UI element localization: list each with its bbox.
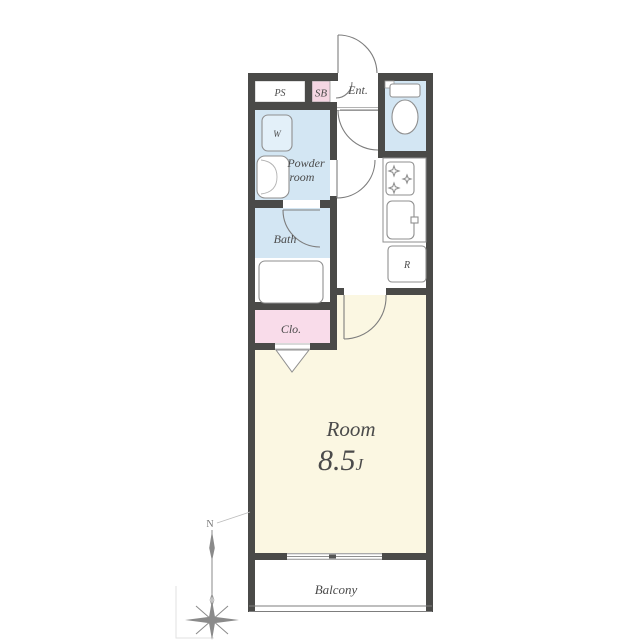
compass-leader-line bbox=[217, 512, 250, 523]
compass-rose-icon bbox=[176, 512, 250, 640]
wall-right bbox=[426, 81, 433, 612]
label-compass-north: N bbox=[206, 519, 213, 530]
label-ps: PS bbox=[273, 88, 285, 99]
floor-plan-page: PS SB Ent. W Powder room Bath Clo. R Roo… bbox=[0, 0, 640, 640]
wall-center-lower bbox=[330, 196, 337, 343]
sink-icon bbox=[387, 201, 414, 239]
toilet-tank bbox=[390, 84, 420, 97]
wall-ps-sb bbox=[305, 81, 312, 102]
wall-powder-bath-left bbox=[248, 200, 283, 208]
wall-powder-bath-right bbox=[320, 200, 337, 208]
washbasin-icon bbox=[257, 156, 289, 198]
label-fridge: R bbox=[403, 260, 410, 271]
compass-arrowhead bbox=[209, 531, 215, 561]
wall-room-bottom-right bbox=[382, 553, 433, 560]
wall-top-right bbox=[378, 73, 433, 81]
wall-top-left bbox=[248, 73, 338, 81]
wall-room-bottom-left bbox=[248, 553, 287, 560]
label-bath: Bath bbox=[274, 232, 297, 246]
bathtub-icon bbox=[259, 261, 323, 303]
label-room-name: Room bbox=[326, 417, 376, 441]
wall-toilet-left bbox=[378, 81, 385, 158]
label-entrance: Ent. bbox=[347, 83, 368, 97]
floor-plan-svg: PS SB Ent. W Powder room Bath Clo. R Roo… bbox=[0, 0, 640, 640]
window-lock-tick bbox=[329, 555, 336, 559]
label-closet: Clo. bbox=[281, 322, 301, 336]
wall-toilet-bottom bbox=[378, 151, 433, 158]
compass-frame-line bbox=[176, 586, 214, 638]
wall-room-top-stub bbox=[337, 288, 344, 295]
entrance-door-arc-icon bbox=[338, 35, 377, 73]
wall-closet-bottom-right bbox=[310, 343, 337, 350]
wall-center-upper bbox=[330, 102, 337, 160]
wall-closet-bottom-left bbox=[248, 343, 275, 350]
wall-under-ps bbox=[248, 102, 337, 110]
label-balcony: Balcony bbox=[315, 582, 358, 597]
label-powder-line2: room bbox=[290, 170, 315, 184]
toilet-door-arc-icon bbox=[338, 110, 378, 150]
label-sb: SB bbox=[315, 88, 328, 100]
label-powder-line1: Powder bbox=[286, 156, 325, 170]
faucet-icon bbox=[411, 217, 418, 223]
room-size-value: 8.5 bbox=[318, 444, 356, 477]
toilet-icon bbox=[392, 100, 418, 134]
wall-room-top-right bbox=[386, 288, 433, 295]
compass-star-vertical bbox=[209, 600, 216, 640]
powder-door-arc-icon bbox=[337, 160, 375, 198]
